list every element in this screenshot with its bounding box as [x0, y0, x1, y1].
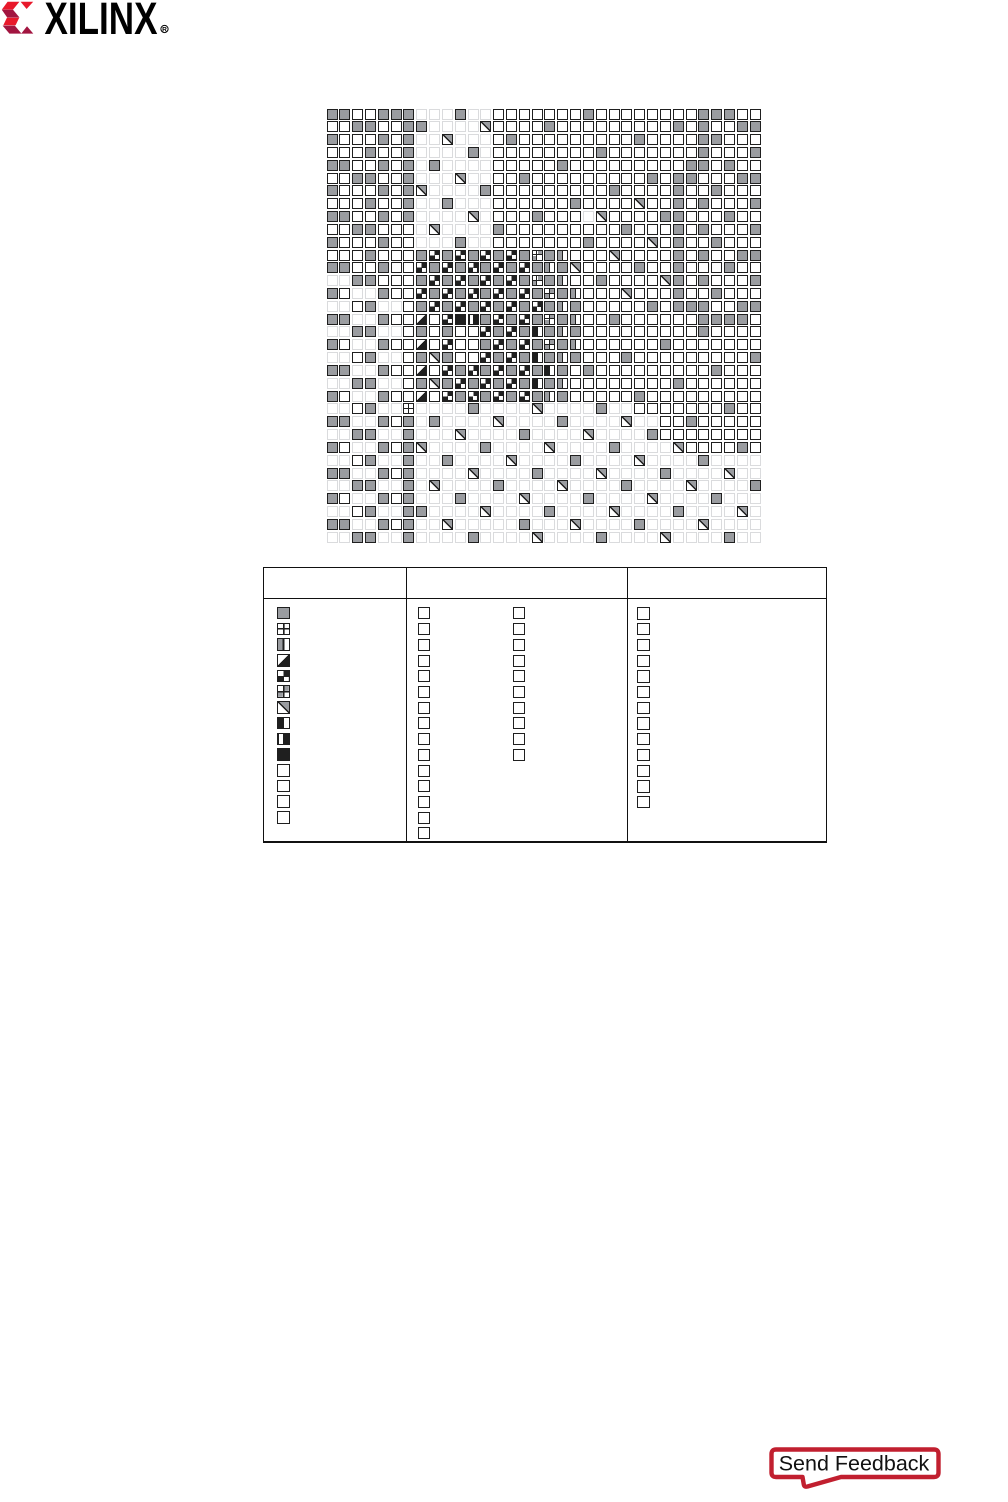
- svg-text:Send Feedback: Send Feedback: [779, 1452, 930, 1476]
- svg-text:XILINX: XILINX: [45, 0, 158, 42]
- svg-text:R: R: [162, 26, 167, 33]
